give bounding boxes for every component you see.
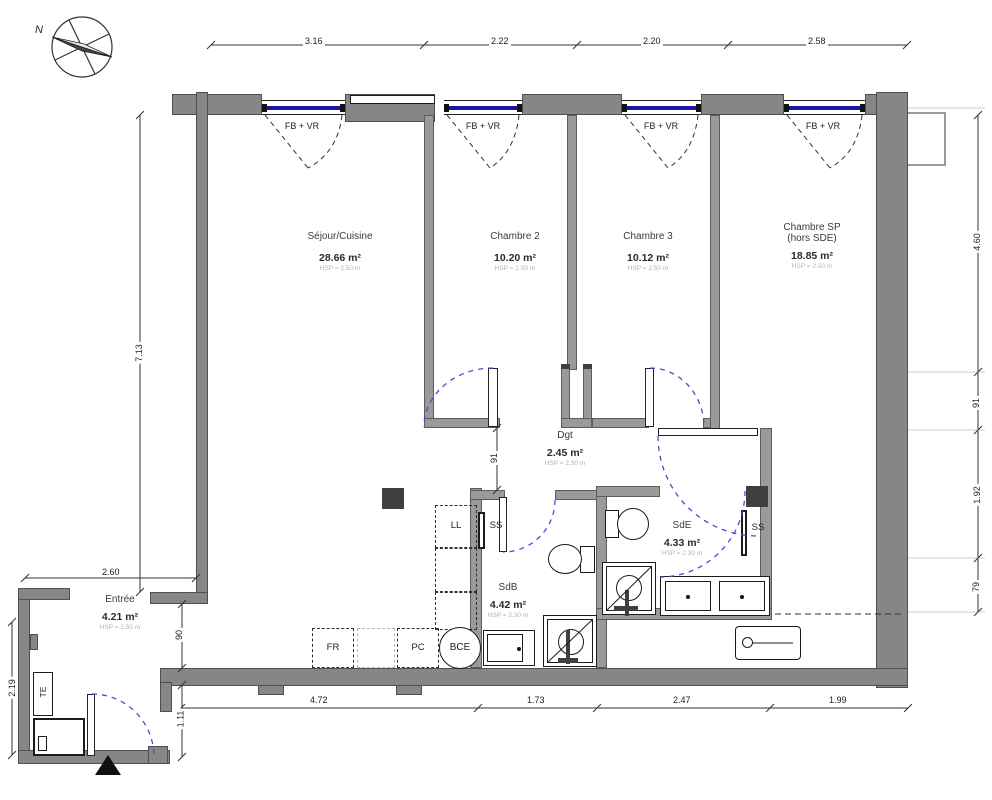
dim-bottom-3: 2.47 [671,695,693,705]
partition-sejour-ch2 [424,115,434,427]
room-label-sejour: Séjour/Cuisine 28.66 m² HSP = 2.50 m [280,231,400,272]
washer-label: LL [441,520,471,531]
dim-wing-width: 2.60 [100,567,122,577]
dim-right-3: 1.92 [972,484,982,506]
door-leaf-chambre3 [645,368,654,427]
door-leaf-chambre2 [488,368,498,427]
window-label-sejour: FB + VR [262,121,342,131]
window-frame-end [784,104,789,112]
compass-north-label: N [33,24,45,36]
hob-label: PC [403,642,433,653]
window-label-chambre3: FB + VR [621,121,701,131]
washbasin-sdb [483,630,535,666]
wall-wing-notch [30,634,38,650]
storage-notch [38,736,47,751]
shower-tap-sde [614,606,638,611]
window-glass [447,106,519,110]
room-label-dgt: Dgt 2.45 m² HSP = 2.50 m [525,430,605,467]
drain-dot [740,595,744,599]
dim-left-height: 7.13 [134,342,144,364]
dim-top-1: 3.16 [303,36,325,46]
water-heater-label: BCE [445,642,475,653]
window-frame-end [340,104,345,112]
dim-bottom-4: 1.99 [827,695,849,705]
shower-drain [558,629,584,655]
dim-bottom-2: 1.73 [525,695,547,705]
window-label-chambre2: FB + VR [443,121,523,131]
door-leaf-chambre-sp [658,428,758,436]
wall-wing-top [18,588,70,600]
wall-left [196,92,208,604]
room-label-chambre-sp: Chambre SP (hors SDE) 18.85 m² HSP = 2.5… [752,222,872,270]
window-frame-end [262,104,267,112]
wall-tooth-1 [258,685,284,695]
wall-entree-stub [148,746,168,764]
towel-rail-sdb [478,512,485,549]
dim-bottom-1: 4.72 [308,695,330,705]
shower-tap-sde [625,590,629,616]
dim-wing-height: 2.19 [7,677,17,699]
window-frame-end [517,104,522,112]
toilet-bowl-sdb [548,544,582,574]
window-frame-end [860,104,865,112]
dim-dgt-width: 91 [489,451,499,465]
window-sejour [262,100,345,115]
sink-unit-box [357,628,395,668]
room-label-sde: SdE 4.33 m² HSP = 2.30 m [642,520,722,557]
wall-entree-jamb [160,682,172,712]
toilet-tank-sdb [580,546,595,573]
stub-cap [561,364,570,369]
room-label-entree: Entrée 4.21 m² HSP = 2.50 m [80,594,160,631]
towel-rail-label-sdb: SS [487,520,505,531]
wall-top-3 [701,94,784,115]
dim-entry-door: 1.11 [175,709,185,730]
window-label-chambre-sp: FB + VR [783,121,863,131]
towel-rail-label-sde: SS [749,522,767,533]
wall-bottom [160,668,908,686]
towel-rail-sde [741,510,747,556]
window-glass [625,106,698,110]
room-label-chambre2: Chambre 2 10.20 m² HSP = 2.50 m [455,231,575,272]
dim-right-2: 91 [971,396,981,410]
furniture-chsp [735,626,801,660]
entree-storage-box [33,718,85,756]
drain-dot [517,647,521,651]
window-frame-end [622,104,627,112]
partition-stub-base [561,418,592,428]
wall-top-1 [172,94,262,115]
room-label-sdb: SdB 4.42 m² HSP = 2.30 m [468,582,548,619]
duct-shaft [746,486,768,507]
fridge-label: FR [318,642,348,653]
partition-ch3-chsp [710,115,720,430]
floor-plan: N FB + VR FB + VR FB + VR FB + VR Séjour… [0,0,992,800]
dim-right-1: 4.60 [972,231,982,253]
window-frame-end [444,104,449,112]
partition-sde-north [596,486,660,497]
stub-cap [583,364,592,369]
window-frame-end [696,104,701,112]
wall-right [876,92,908,688]
shower-drain [616,575,642,601]
furniture-knob [742,637,753,648]
window-glass [265,106,342,110]
window-glass [787,106,862,110]
dim-right-4: 79 [971,580,981,594]
window-chambre2 [444,100,522,115]
wall-top-2 [522,94,622,115]
double-basin-sde [660,576,770,616]
electrical-panel-label: TE [38,682,48,702]
wall-tooth-2 [396,685,422,695]
dim-passage-opening: 90 [174,628,184,642]
room-label-chambre3: Chambre 3 10.12 m² HSP = 2.50 m [588,231,708,272]
balcony-rail-detail [350,95,435,104]
duct-shaft [382,488,404,509]
shower-tap-sdb [558,658,578,663]
drain-dot [686,595,690,599]
partition-sdb-north-right [555,490,600,500]
dim-top-3: 2.20 [641,36,663,46]
partition-ch3-bottom-left [592,418,649,428]
window-chambre-sp [784,100,865,115]
door-leaf-entree [87,694,95,756]
wall-wing-left [18,588,30,764]
dim-top-4: 2.58 [806,36,828,46]
window-chambre3 [622,100,701,115]
dim-top-2: 2.22 [489,36,511,46]
